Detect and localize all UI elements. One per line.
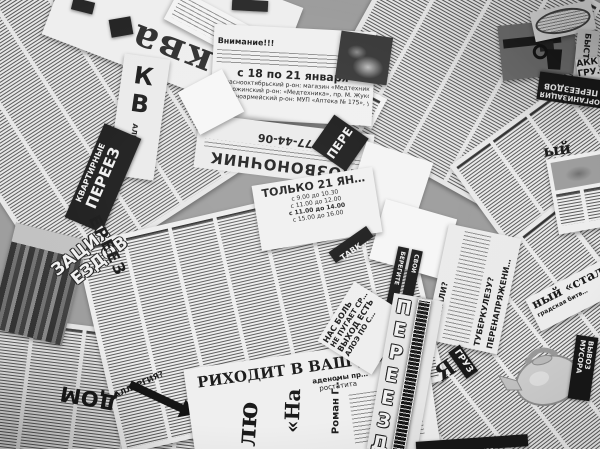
typewriter-photo: [335, 31, 393, 86]
text-column: [584, 186, 600, 222]
fake-text-block: [552, 185, 600, 231]
small-dark-clipping: [109, 16, 134, 38]
text-column: [556, 190, 585, 226]
lyu-vertical: лю: [232, 401, 265, 448]
kv-headline: КВ: [124, 60, 160, 119]
newspaper-collage: АЛЛЕРГИЯ? осква КВ АЛМАГ КВАРТИРНЫЕ ПЕРЕ…: [0, 0, 600, 449]
pere-label: ПЕРЕ: [324, 125, 356, 162]
attention-headline: Внимание!!!: [217, 36, 274, 48]
collage-layer: АЛЛЕРГИЯ? осква КВ АЛМАГ КВАРТИРНЫЕ ПЕРЕ…: [0, 0, 600, 449]
small-dark-clipping: [232, 0, 269, 12]
roman-vertical: Роман Г…: [330, 378, 341, 434]
article-photo: [550, 154, 600, 191]
na-vertical: «На: [280, 388, 306, 433]
